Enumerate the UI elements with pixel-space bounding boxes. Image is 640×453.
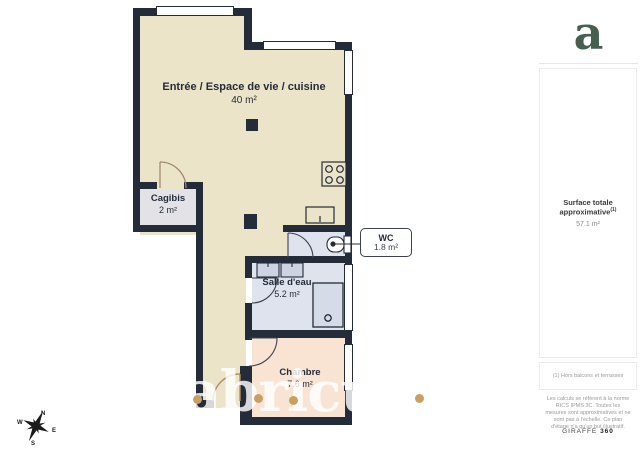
washbasin-icon [257, 263, 303, 277]
label-salledeau: Salle d'eau 5.2 m² [250, 277, 324, 299]
wc-door-arc [288, 233, 313, 258]
stove-icon [322, 162, 346, 186]
compass-e: E [52, 428, 56, 434]
cagibis-name: Cagibis [140, 193, 196, 204]
logo-letter: a [574, 10, 604, 56]
compass-w: W [17, 420, 23, 426]
kitchen-sink-icon [306, 207, 334, 223]
surface-value: 57.1 m² [576, 221, 600, 228]
salledeau-name: Salle d'eau [250, 277, 324, 288]
compass-star [16, 405, 56, 448]
surface-label-sup: (1) [610, 207, 616, 213]
main-room-area: 40 m² [138, 95, 350, 106]
floorplan-page: Entrée / Espace de vie / cuisine 40 m² C… [0, 0, 640, 453]
surface-label-text: Surface totale approximative [560, 198, 613, 217]
brand-logo: GIRAFFE 360 [539, 428, 637, 435]
salledeau-area: 5.2 m² [250, 289, 324, 299]
sidebar-divider [539, 63, 638, 64]
compass-s: S [31, 441, 35, 447]
camera-dot [254, 394, 263, 403]
brand-name: GIRAFFE [562, 428, 597, 435]
chambre-area: 7.6 m² [255, 379, 345, 389]
label-chambre: Chambre 7.6 m² [255, 367, 345, 389]
cagibis-area: 2 m² [140, 205, 196, 215]
wc-callout-box: WC 1.8 m² [360, 228, 412, 257]
entrance-door-arc [213, 374, 240, 401]
camera-dot [415, 394, 424, 403]
chambre-door-arc [249, 338, 277, 366]
compass-n: N [41, 411, 45, 417]
sidebar: a Surface totale approximative(1) 57.1 m… [539, 0, 638, 453]
label-cagibis: Cagibis 2 m² [140, 193, 196, 215]
brand-suffix: 360 [600, 428, 614, 435]
footnote-text: (1) Hors balcons et terrasses [553, 373, 624, 379]
compass-rose: N E S W [12, 402, 60, 448]
chambre-name: Chambre [255, 367, 345, 378]
legal-text: Les calculs se réfèrent à la norme RICS … [545, 396, 631, 430]
surface-card: Surface totale approximative(1) 57.1 m² [539, 68, 637, 358]
footnote-card: (1) Hors balcons et terrasses [539, 362, 637, 390]
surface-label: Surface totale approximative(1) [540, 198, 636, 217]
camera-dot [193, 395, 202, 404]
agency-logo: a [539, 6, 638, 60]
label-main-room: Entrée / Espace de vie / cuisine 40 m² [138, 81, 350, 106]
main-room-name: Entrée / Espace de vie / cuisine [138, 81, 350, 93]
wc-area: 1.8 m² [374, 243, 398, 252]
cagibis-door-arc [160, 162, 186, 188]
camera-dot [289, 396, 298, 405]
